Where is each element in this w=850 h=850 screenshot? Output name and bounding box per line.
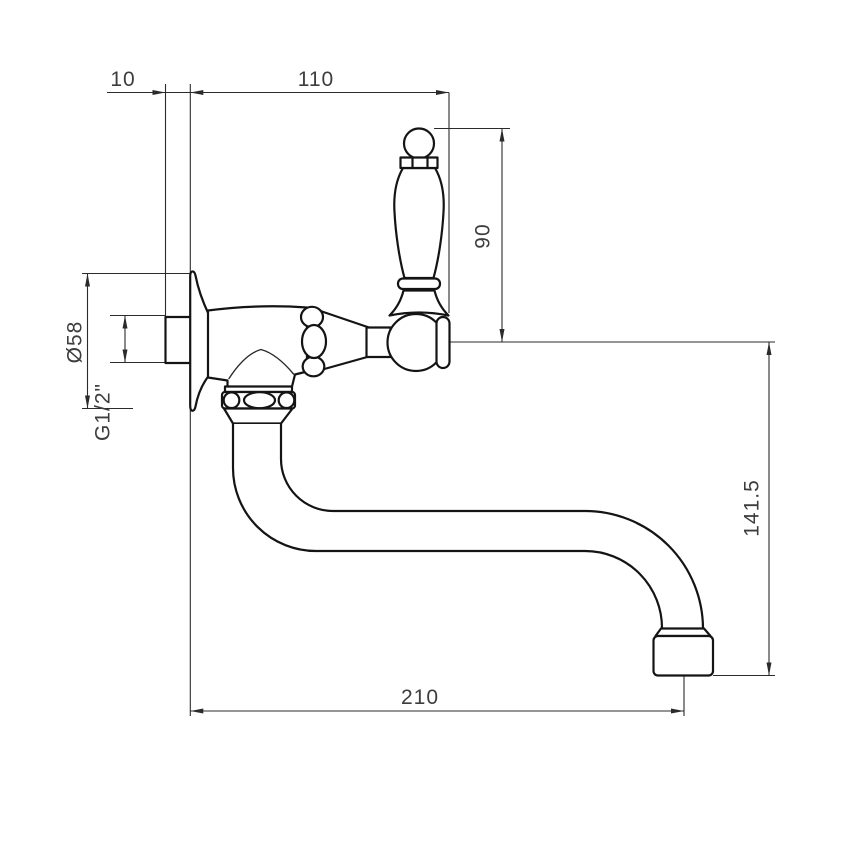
arrowhead-right-10 — [153, 90, 166, 95]
wall-nipple — [166, 317, 193, 363]
arrowhead-up-90 — [500, 129, 505, 142]
lever-handle — [390, 129, 449, 316]
arrowhead-up-141-5 — [767, 342, 772, 355]
dim-label-handle-reach: 110 — [298, 68, 334, 91]
arrowhead-up-thread — [123, 316, 128, 329]
ornament-bead-middle — [302, 325, 326, 358]
handle-ball-top — [404, 129, 434, 159]
nut-bead-left — [224, 392, 240, 408]
arrowhead-left-110 — [190, 90, 203, 95]
arrowhead-down-58 — [85, 396, 90, 409]
faucet-technical-drawing: 10 110 90 Ø58 G1/2" 141.5 210 — [0, 0, 850, 850]
spout-tube-fill — [233, 424, 703, 629]
arrowhead-down-90 — [500, 329, 505, 342]
handle-spindle — [394, 168, 443, 278]
handle-flare — [390, 291, 449, 316]
dim-label-thread-size: G1/2" — [92, 383, 115, 441]
faucet-outline — [166, 129, 714, 676]
arrowhead-down-thread — [123, 350, 128, 363]
dim-label-handle-height: 90 — [472, 223, 495, 248]
ornament-bead-bottom — [303, 357, 325, 377]
arrowhead-left-210 — [190, 709, 203, 714]
nut-bead-center — [244, 392, 275, 408]
nut-bead-right — [279, 392, 295, 408]
dim-label-spout-reach: 210 — [401, 686, 439, 709]
ball-cap — [437, 317, 450, 368]
wall-flange — [190, 271, 209, 410]
arrowhead-up-58 — [85, 274, 90, 287]
nut-cone — [224, 409, 293, 424]
dim-label-wall-offset: 10 — [110, 68, 135, 91]
arrowhead-down-141-5 — [767, 663, 772, 676]
arrowhead-right-210 — [671, 709, 684, 714]
dim-label-flange-diameter: Ø58 — [64, 321, 87, 364]
handle-lower-ring — [398, 279, 440, 290]
handle-collar — [401, 158, 438, 169]
arrowhead-right-110 — [436, 90, 449, 95]
valve-body — [208, 306, 307, 388]
nozzle-collar — [656, 629, 711, 637]
nozzle-aerator — [654, 636, 714, 676]
drawing-canvas: 10 110 90 Ø58 G1/2" 141.5 210 — [0, 0, 850, 850]
dim-label-spout-drop: 141.5 — [741, 479, 764, 537]
